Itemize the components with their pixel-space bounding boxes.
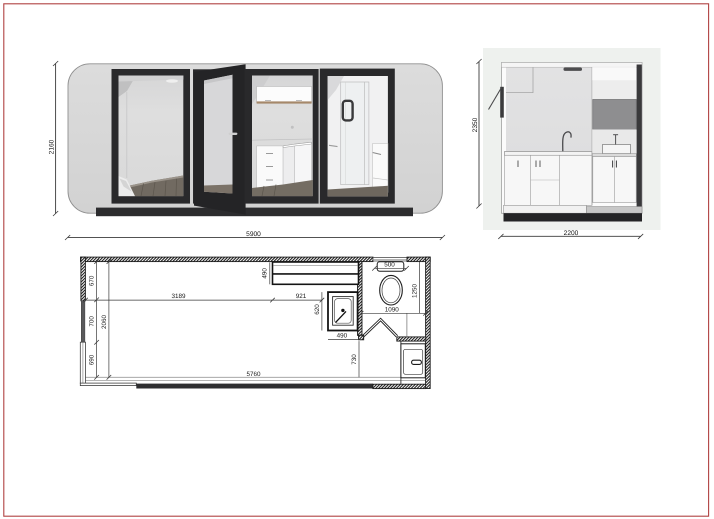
svg-text:700: 700 — [89, 316, 96, 327]
svg-text:1090: 1090 — [385, 307, 400, 314]
svg-text:670: 670 — [89, 275, 96, 286]
svg-text:500: 500 — [384, 262, 395, 269]
svg-text:2350: 2350 — [472, 117, 479, 132]
svg-text:2160: 2160 — [48, 139, 55, 154]
svg-text:620: 620 — [314, 304, 321, 315]
svg-text:921: 921 — [296, 293, 307, 300]
svg-text:2200: 2200 — [564, 230, 579, 237]
svg-text:5760: 5760 — [246, 371, 261, 378]
svg-text:5900: 5900 — [246, 231, 261, 238]
svg-text:490: 490 — [261, 268, 268, 279]
svg-text:490: 490 — [337, 333, 348, 340]
svg-text:3189: 3189 — [171, 293, 186, 300]
svg-text:690: 690 — [89, 354, 96, 365]
svg-text:2060: 2060 — [101, 315, 108, 330]
svg-text:1250: 1250 — [412, 284, 419, 299]
svg-text:730: 730 — [351, 354, 358, 365]
